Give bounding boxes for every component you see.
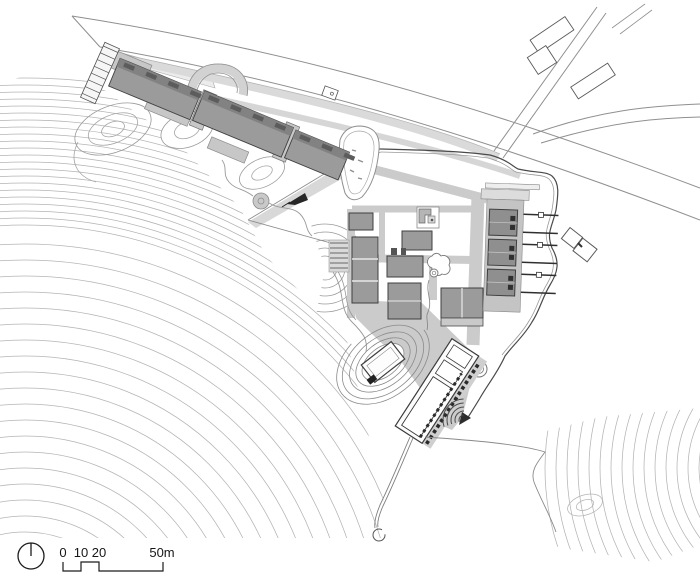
- scale-label-50m: 50m: [149, 545, 174, 560]
- building: [387, 256, 423, 277]
- site-plan-drawing: 0 10 20 50m: [0, 0, 700, 584]
- site-plan-page: 0 10 20 50m: [0, 0, 700, 584]
- pavilion: [417, 207, 439, 228]
- building: [352, 237, 378, 303]
- building: [402, 231, 432, 250]
- building-pair: [441, 288, 483, 326]
- building: [349, 213, 373, 230]
- scale-label-0: 0: [59, 545, 66, 560]
- scale-label-20: 20: [92, 545, 106, 560]
- tree: [430, 269, 438, 277]
- ramp-stairs: [329, 240, 349, 272]
- scale-label-10: 10: [74, 545, 88, 560]
- path-node: [253, 193, 269, 209]
- north-arrow-icon: [18, 543, 44, 569]
